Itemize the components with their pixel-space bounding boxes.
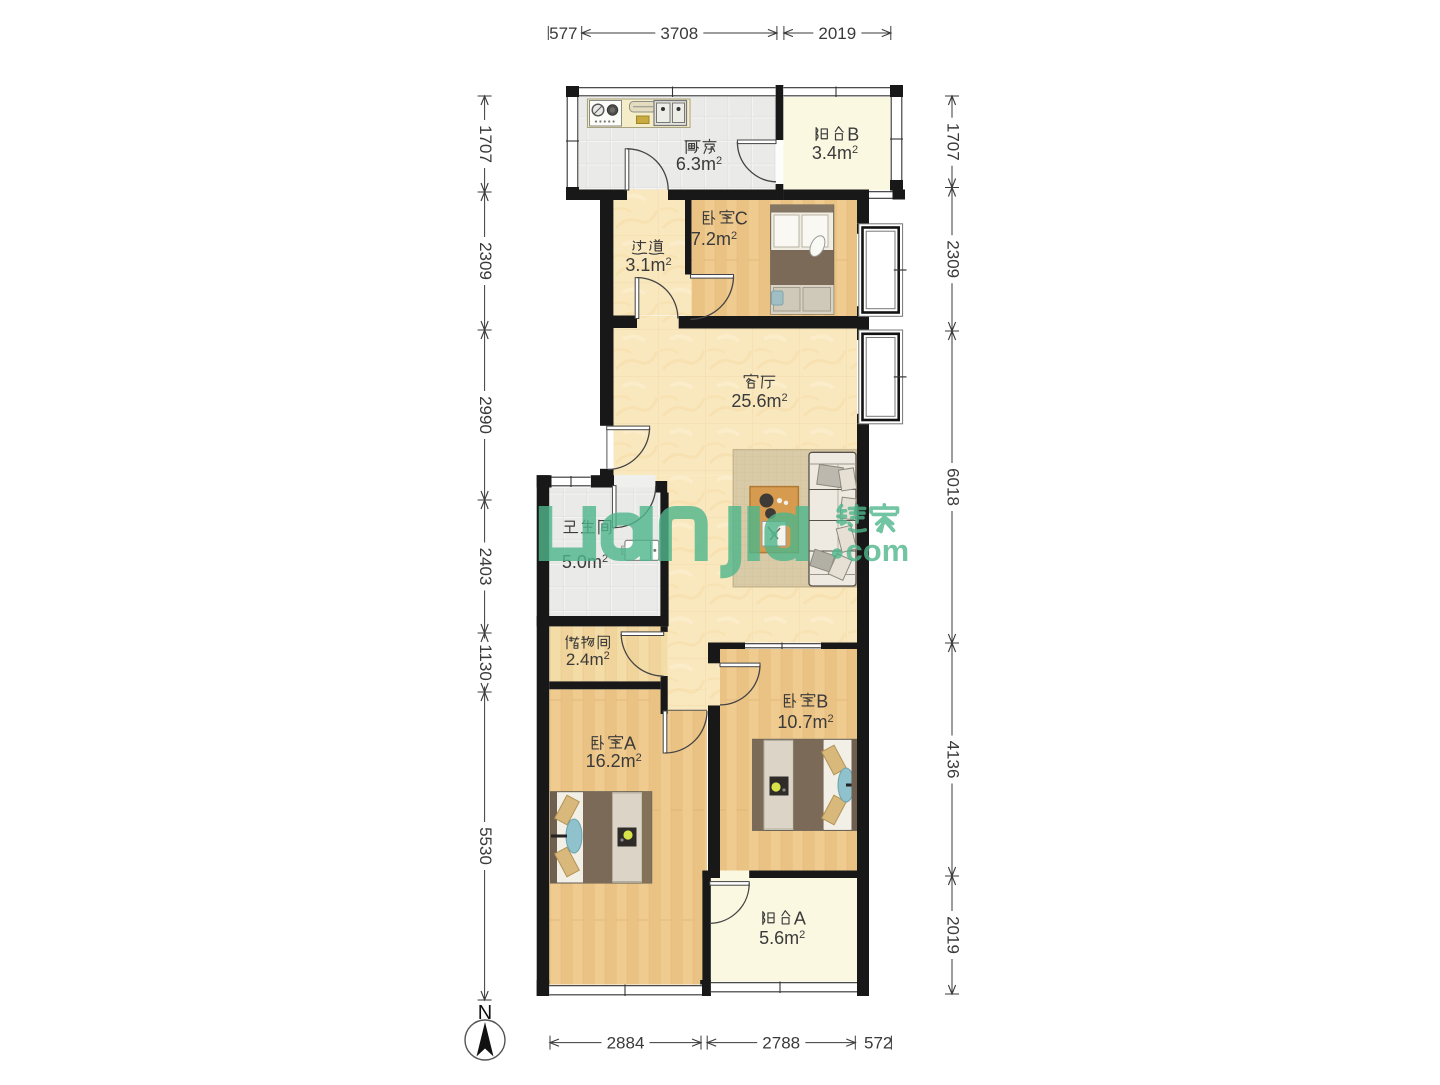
svg-text:7.2m2: 7.2m2 bbox=[691, 229, 737, 249]
svg-text:10.7m2: 10.7m2 bbox=[777, 712, 833, 732]
svg-text:2019: 2019 bbox=[943, 916, 962, 954]
svg-text:25.6m2: 25.6m2 bbox=[731, 391, 787, 411]
svg-text:5530: 5530 bbox=[476, 827, 495, 865]
svg-text:2309: 2309 bbox=[943, 240, 962, 278]
svg-text:6018: 6018 bbox=[943, 468, 962, 506]
svg-text:4136: 4136 bbox=[943, 741, 962, 779]
svg-text:1130: 1130 bbox=[476, 644, 495, 681]
svg-text:2403: 2403 bbox=[476, 548, 495, 586]
svg-text:2.4m2: 2.4m2 bbox=[566, 650, 610, 669]
svg-text:6.3m2: 6.3m2 bbox=[676, 154, 722, 174]
svg-text:3708: 3708 bbox=[660, 24, 698, 43]
svg-text:5.6m2: 5.6m2 bbox=[759, 928, 805, 948]
svg-text:2309: 2309 bbox=[476, 242, 495, 280]
svg-text:572: 572 bbox=[864, 1034, 892, 1053]
svg-text:B: B bbox=[847, 125, 859, 145]
svg-text:2019: 2019 bbox=[818, 24, 856, 43]
svg-text:1707: 1707 bbox=[476, 125, 495, 163]
svg-text:com: com bbox=[846, 533, 910, 568]
svg-text:16.2m2: 16.2m2 bbox=[586, 751, 642, 771]
svg-text:3.4m2: 3.4m2 bbox=[812, 143, 858, 163]
svg-text:2788: 2788 bbox=[762, 1034, 800, 1053]
svg-text:C: C bbox=[735, 209, 748, 229]
svg-text:1707: 1707 bbox=[943, 123, 962, 161]
svg-text:A: A bbox=[794, 909, 806, 929]
svg-text:577: 577 bbox=[549, 24, 577, 43]
svg-text:N: N bbox=[478, 1002, 492, 1024]
svg-text:3.1m2: 3.1m2 bbox=[625, 255, 671, 275]
svg-text:B: B bbox=[816, 692, 828, 712]
svg-text:2990: 2990 bbox=[476, 396, 495, 434]
svg-text:2884: 2884 bbox=[607, 1034, 645, 1053]
